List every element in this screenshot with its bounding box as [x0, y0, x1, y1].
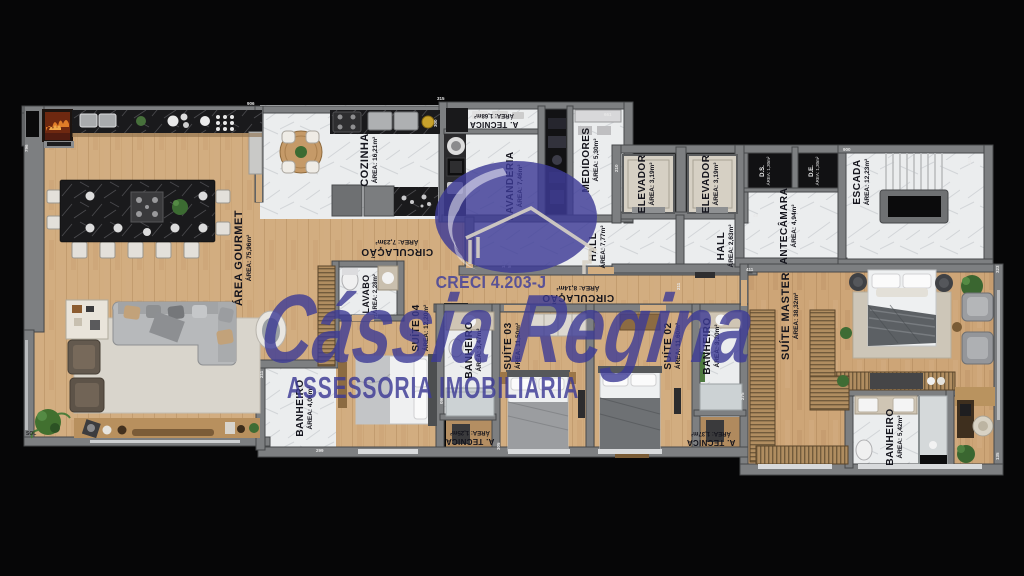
svg-text:49: 49 [753, 213, 759, 218]
svg-text:ÁREA: 7,77m²: ÁREA: 7,77m² [598, 225, 607, 269]
svg-text:ÁREA: 3,19m²: ÁREA: 3,19m² [647, 162, 656, 206]
svg-text:ELEVADOR: ELEVADOR [637, 154, 648, 213]
svg-text:ÁREA: 1,30m²: ÁREA: 1,30m² [814, 156, 820, 185]
svg-text:ÁREA: 75,96m²: ÁREA: 75,96m² [244, 234, 253, 281]
svg-text:ÁREA GOURMET: ÁREA GOURMET [232, 210, 245, 306]
svg-text:COZINHA: COZINHA [359, 133, 371, 187]
svg-text:ÁREA: 12,23m²: ÁREA: 12,23m² [862, 158, 871, 205]
svg-text:ÁREA: 16,21m²: ÁREA: 16,21m² [370, 136, 379, 183]
svg-text:210: 210 [614, 164, 619, 172]
svg-text:HALL: HALL [716, 232, 727, 261]
svg-text:SOL: SOL [26, 431, 36, 437]
svg-text:ÁREA: 1,30m²: ÁREA: 1,30m² [765, 156, 771, 185]
svg-text:305: 305 [496, 442, 501, 450]
svg-text:275: 275 [740, 392, 745, 400]
svg-text:ÁREA: 1,37m²: ÁREA: 1,37m² [691, 430, 731, 437]
svg-text:ANTECÂMARA: ANTECÂMARA [777, 188, 790, 265]
svg-text:135: 135 [995, 452, 1000, 460]
svg-text:315: 315 [437, 96, 445, 101]
svg-text:ÁREA: 2,63m²: ÁREA: 2,63m² [726, 224, 735, 268]
svg-text:A. TECNICA: A. TECNICA [446, 437, 495, 446]
svg-text:411: 411 [746, 267, 754, 272]
svg-text:ÁREA: 5,42m²: ÁREA: 5,42m² [895, 415, 904, 459]
svg-text:ÁREA: 4,94m²: ÁREA: 4,94m² [789, 204, 798, 248]
svg-text:ÁREA: 1,25m²: ÁREA: 1,25m² [450, 429, 490, 436]
svg-text:906: 906 [247, 101, 255, 106]
svg-text:ÁREA: 3,19m²: ÁREA: 3,19m² [711, 162, 720, 206]
svg-text:ASSESSORIA IMOBILIARIA: ASSESSORIA IMOBILIARIA [287, 370, 579, 405]
svg-text:323: 323 [995, 265, 1000, 273]
svg-text:661: 661 [604, 112, 612, 117]
svg-text:299: 299 [316, 448, 324, 453]
svg-text:CIRCULAÇÃO: CIRCULAÇÃO [361, 246, 433, 259]
svg-text:BANHEIRO: BANHEIRO [885, 408, 896, 465]
svg-text:MEDIDORES: MEDIDORES [581, 127, 592, 192]
svg-text:Cássia Regina: Cássia Regina [255, 275, 760, 384]
svg-text:ESCADA: ESCADA [852, 159, 863, 204]
svg-text:ÁREA: 1,68m²: ÁREA: 1,68m² [474, 112, 514, 119]
svg-text:SUÍTE MASTER: SUÍTE MASTER [779, 272, 792, 360]
svg-text:ELEVADOR: ELEVADOR [701, 154, 712, 213]
svg-text:315: 315 [967, 157, 972, 165]
svg-text:A. TECNICA: A. TECNICA [687, 438, 736, 447]
svg-text:A. TECNICA: A. TECNICA [470, 120, 519, 129]
svg-text:ÁREA: 38,32m²: ÁREA: 38,32m² [791, 292, 800, 339]
svg-text:796: 796 [24, 144, 29, 152]
svg-text:ÁREA: 5,30m²: ÁREA: 5,30m² [591, 138, 600, 182]
svg-text:ÁREA: 7,23m²: ÁREA: 7,23m² [375, 238, 419, 247]
svg-text:300: 300 [433, 119, 438, 127]
svg-text:900: 900 [843, 147, 851, 152]
